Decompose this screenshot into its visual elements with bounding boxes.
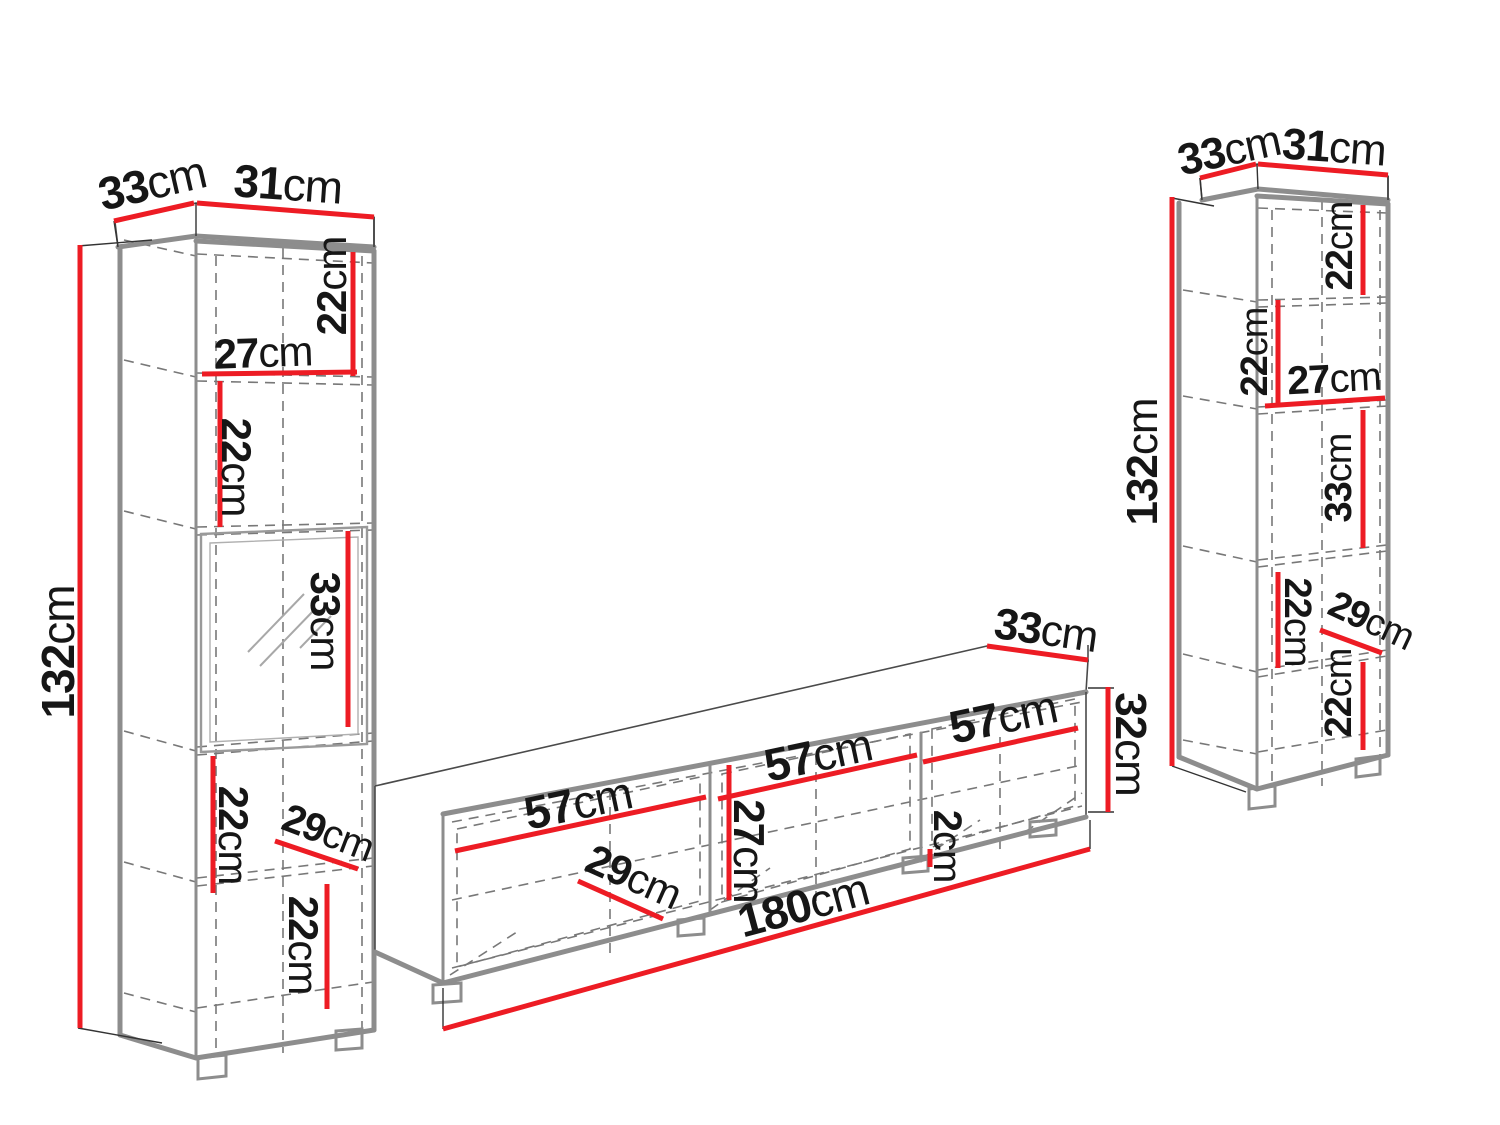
left-cabinet: 33cm 31cm 132cm 22cm 27cm 22cm 33cm 22cm… bbox=[32, 145, 380, 1079]
tv-height-label: 32cm bbox=[1107, 692, 1156, 796]
left-compartment1-height-label: 22cm bbox=[308, 237, 355, 336]
left-cabinet-side-face bbox=[120, 241, 196, 1058]
right-height-label: 132cm bbox=[1118, 398, 1167, 525]
right-compartment2-height-label: 22cm bbox=[1234, 308, 1276, 397]
left-compartment4-height-label: 22cm bbox=[211, 786, 258, 885]
left-compartment2-height-label: 22cm bbox=[214, 418, 261, 517]
left-top-width-label: 31cm bbox=[232, 154, 344, 213]
right-compartment5-height-label: 22cm bbox=[1318, 649, 1360, 738]
right-compartment3-height-label: 33cm bbox=[1318, 434, 1360, 523]
tv-door-gap-label: 2cm bbox=[925, 810, 969, 883]
right-compartment4-height-label: 22cm bbox=[1276, 578, 1318, 667]
right-top-width-label: 31cm bbox=[1281, 119, 1388, 175]
left-inner-width-label: 27cm bbox=[213, 327, 313, 377]
tv-stand-left-end-face bbox=[375, 786, 443, 983]
right-compartment1-height-label: 22cm bbox=[1319, 202, 1361, 291]
right-cabinet: 33cm 31cm 132cm 22cm 22cm 27cm 33cm 22cm… bbox=[1118, 115, 1421, 809]
furniture-dimension-diagram: 33cm 31cm 132cm 22cm 27cm 22cm 33cm 22cm… bbox=[0, 0, 1500, 1125]
tv-stand: 33cm 57cm 57cm 57cm 27cm 29cm 2cm 180cm … bbox=[375, 599, 1156, 1029]
right-inner-width-label: 27cm bbox=[1286, 355, 1382, 404]
left-height-label: 132cm bbox=[32, 585, 84, 718]
right-cabinet-side-face bbox=[1179, 196, 1257, 789]
diagram-canvas: 33cm 31cm 132cm 22cm 27cm 22cm 33cm 22cm… bbox=[0, 0, 1500, 1125]
left-compartment5-height-label: 22cm bbox=[281, 896, 328, 995]
left-glass-height-label: 33cm bbox=[303, 572, 350, 671]
